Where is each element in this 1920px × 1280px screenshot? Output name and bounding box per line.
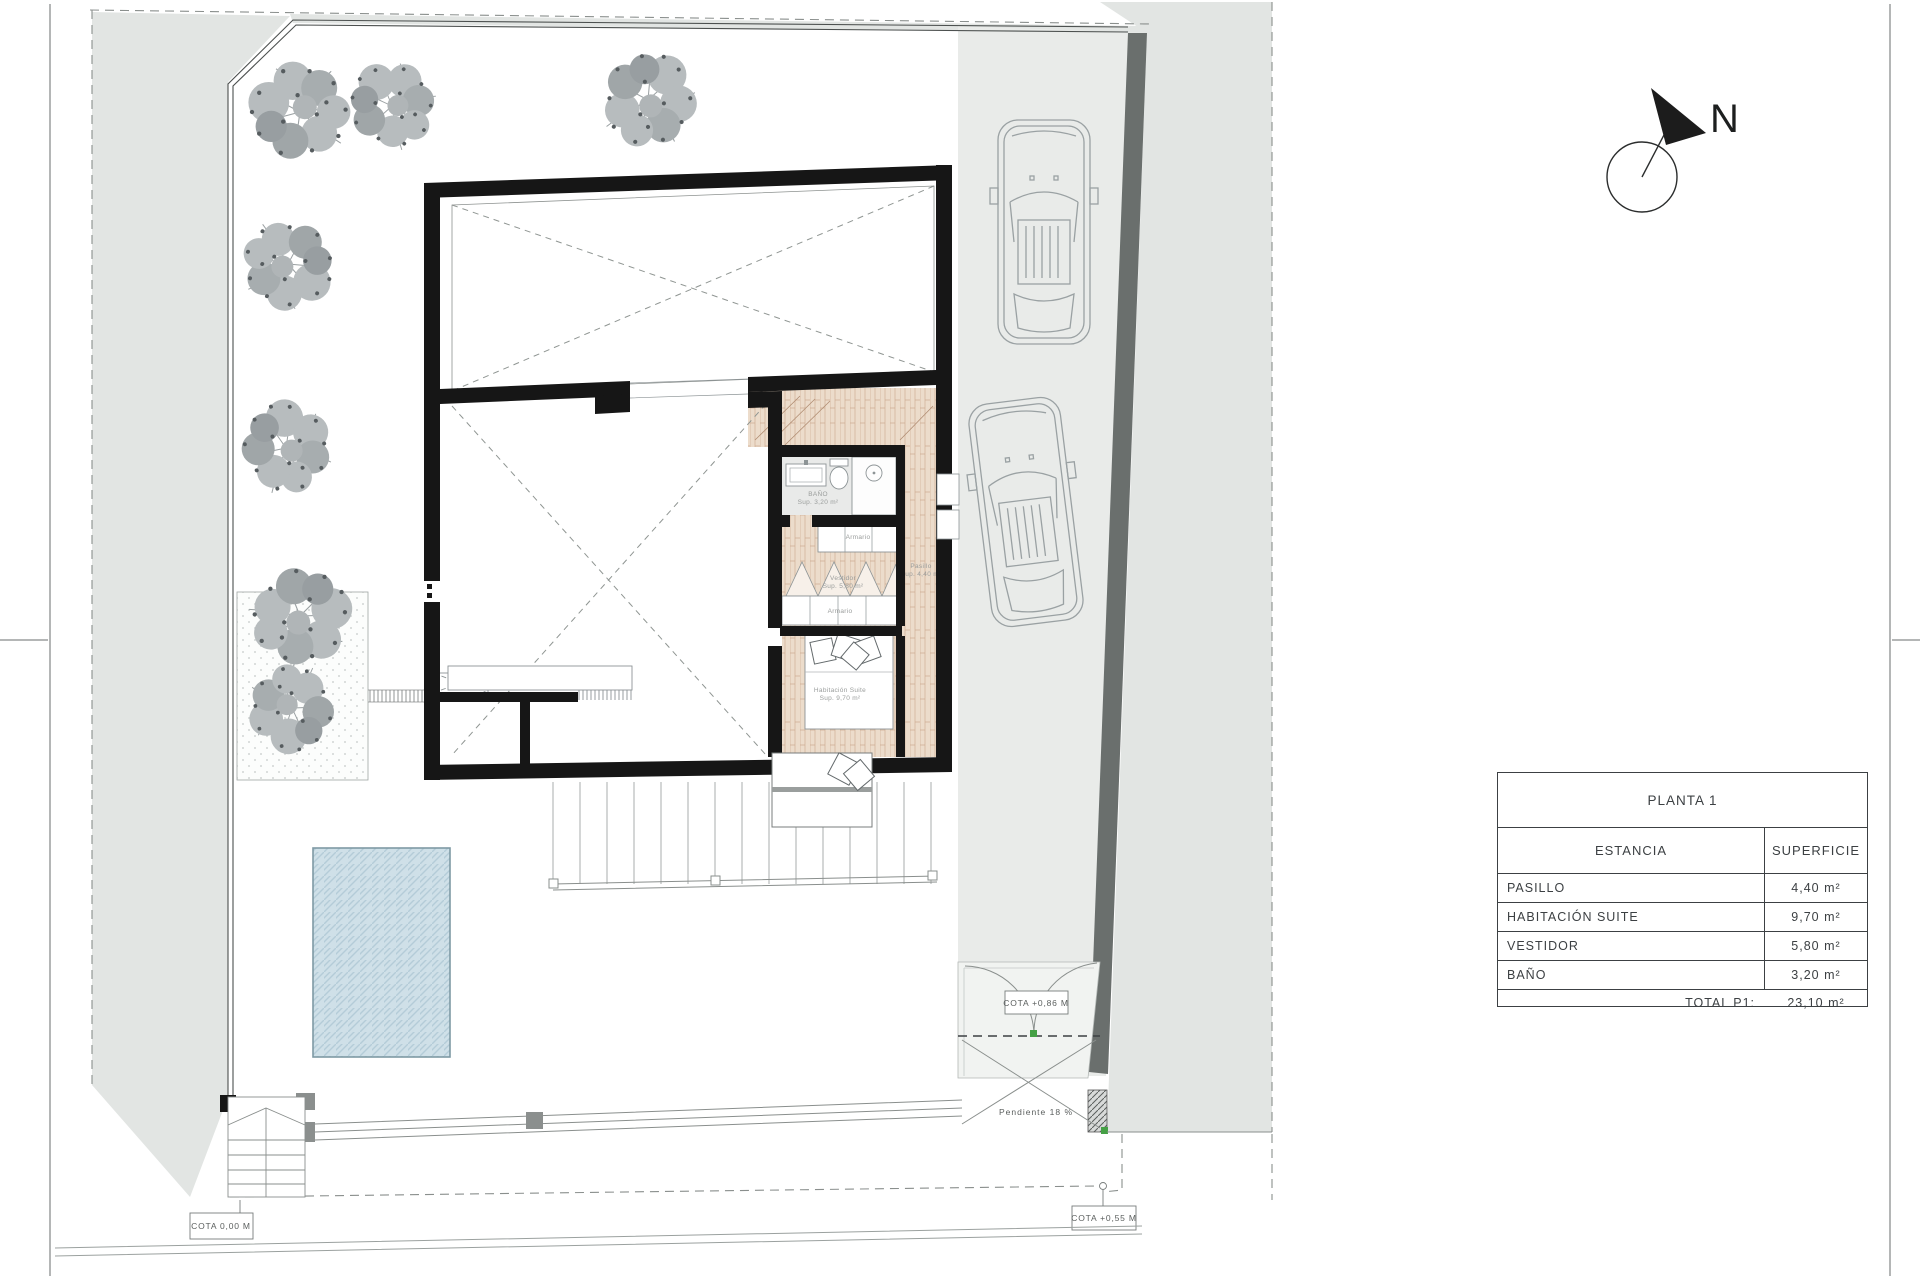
total-area: 23,10 m² [1765, 990, 1867, 1016]
tree [331, 43, 454, 166]
bath-area-label: Sup. 3,20 m² [798, 499, 839, 506]
entrance-gate: COTA +0,86 M Pendiente 18 % [958, 962, 1100, 1128]
survey-marker-green [1101, 1127, 1108, 1134]
area-table-title: PLANTA 1 [1498, 773, 1867, 828]
gate-hinge-marker [1030, 1030, 1037, 1037]
entry-steps [228, 1097, 305, 1197]
tree [230, 388, 346, 506]
tree [229, 208, 347, 324]
table-total-row: TOTAL P1: 23,10 m² [1498, 990, 1867, 1016]
sink [786, 464, 826, 486]
vestidor-area-label: Sup. 5,80 m² [823, 583, 864, 590]
entry-cota-label: COTA 0,00 M [191, 1221, 251, 1231]
balcony-bench [772, 753, 874, 827]
room-area: 3,20 m² [1765, 961, 1867, 989]
room-area: 9,70 m² [1765, 903, 1867, 931]
area-table: PLANTA 1 ESTANCIA SUPERFICIE PASILLO 4,4… [1497, 772, 1868, 1007]
wardrobe-label: Armario [846, 534, 871, 541]
suite-area-label: Sup. 9,70 m² [820, 695, 861, 702]
bedroom-suite: Habitación Suite Sup. 9,70 m² [805, 633, 893, 729]
bathroom: BAÑO Sup. 3,20 m² [782, 457, 896, 515]
table-row: PASILLO 4,40 m² [1498, 874, 1867, 903]
street-fence: COTA 0,00 M [190, 1093, 962, 1239]
room-name: HABITACIÓN SUITE [1498, 903, 1765, 931]
street-cota: COTA +0,55 M [1071, 1183, 1136, 1231]
room-area: 4,40 m² [1765, 874, 1867, 902]
street-cota-label: COTA +0,55 M [1071, 1213, 1136, 1223]
bath-label: BAÑO [808, 489, 828, 498]
suite-label: Habitación Suite [814, 687, 866, 694]
col-room-header: ESTANCIA [1498, 828, 1765, 873]
north-letter: N [1710, 97, 1739, 141]
north-arrow-icon [1651, 88, 1706, 145]
room-name: PASILLO [1498, 874, 1765, 902]
swimming-pool [313, 848, 450, 1057]
north-compass: N [1607, 88, 1739, 212]
slope-label: Pendiente 18 % [999, 1107, 1073, 1117]
building: BAÑO Sup. 3,20 m² Armario Armario Vestid… [424, 165, 959, 827]
terrace-steps [549, 782, 937, 890]
area-table-header: ESTANCIA SUPERFICIE [1498, 828, 1867, 874]
gate-post-hatched [1088, 1090, 1107, 1132]
col-area-header: SUPERFICIE [1765, 828, 1867, 873]
gate-cota-label: COTA +0,86 M [1003, 998, 1068, 1008]
window [937, 474, 959, 505]
site-plan-drawing: BAÑO Sup. 3,20 m² Armario Armario Vestid… [0, 0, 1920, 1280]
hall-label: Pasillo [910, 563, 931, 570]
total-label: TOTAL P1: [1498, 990, 1765, 1016]
toilet [830, 459, 848, 466]
walkway-hatch [370, 690, 422, 702]
table-row: HABITACIÓN SUITE 9,70 m² [1498, 903, 1867, 932]
wardrobe-label: Armario [828, 608, 853, 615]
floor-plan-sheet: BAÑO Sup. 3,20 m² Armario Armario Vestid… [0, 0, 1920, 1280]
room-area: 5,80 m² [1765, 932, 1867, 960]
table-row: VESTIDOR 5,80 m² [1498, 932, 1867, 961]
hall-area-label: Sup. 4,40 m² [901, 571, 942, 578]
fence-post [526, 1112, 543, 1129]
tree [248, 62, 350, 159]
vestidor-label: Vestidor [830, 575, 856, 582]
table-row: BAÑO 3,20 m² [1498, 961, 1867, 990]
room-name: VESTIDOR [1498, 932, 1765, 960]
window [937, 510, 959, 539]
tree [589, 38, 710, 162]
room-name: BAÑO [1498, 961, 1765, 989]
